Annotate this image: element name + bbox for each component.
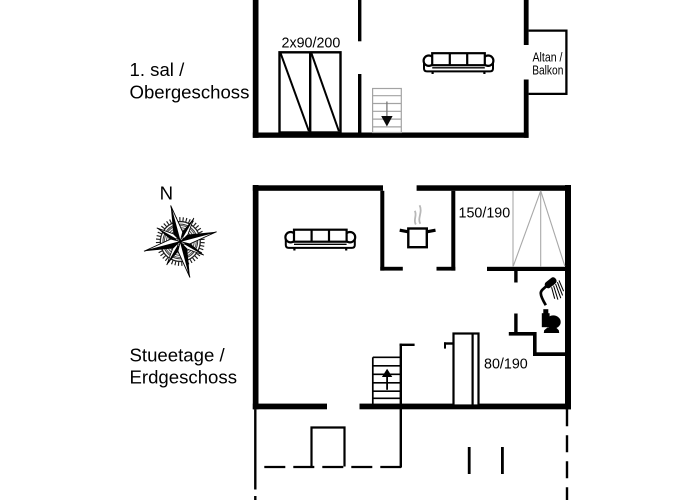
svg-text:Stueetage /: Stueetage / <box>130 345 226 366</box>
svg-text:2x90/200: 2x90/200 <box>282 36 341 52</box>
svg-text:150/190: 150/190 <box>459 206 511 222</box>
svg-text:Erdgeschoss: Erdgeschoss <box>130 367 238 388</box>
svg-text:80/190: 80/190 <box>484 357 528 373</box>
svg-text:Balkon: Balkon <box>532 62 563 77</box>
svg-text:Obergeschoss: Obergeschoss <box>130 81 250 102</box>
svg-text:1. sal /: 1. sal / <box>130 59 186 80</box>
svg-text:N: N <box>160 182 173 203</box>
